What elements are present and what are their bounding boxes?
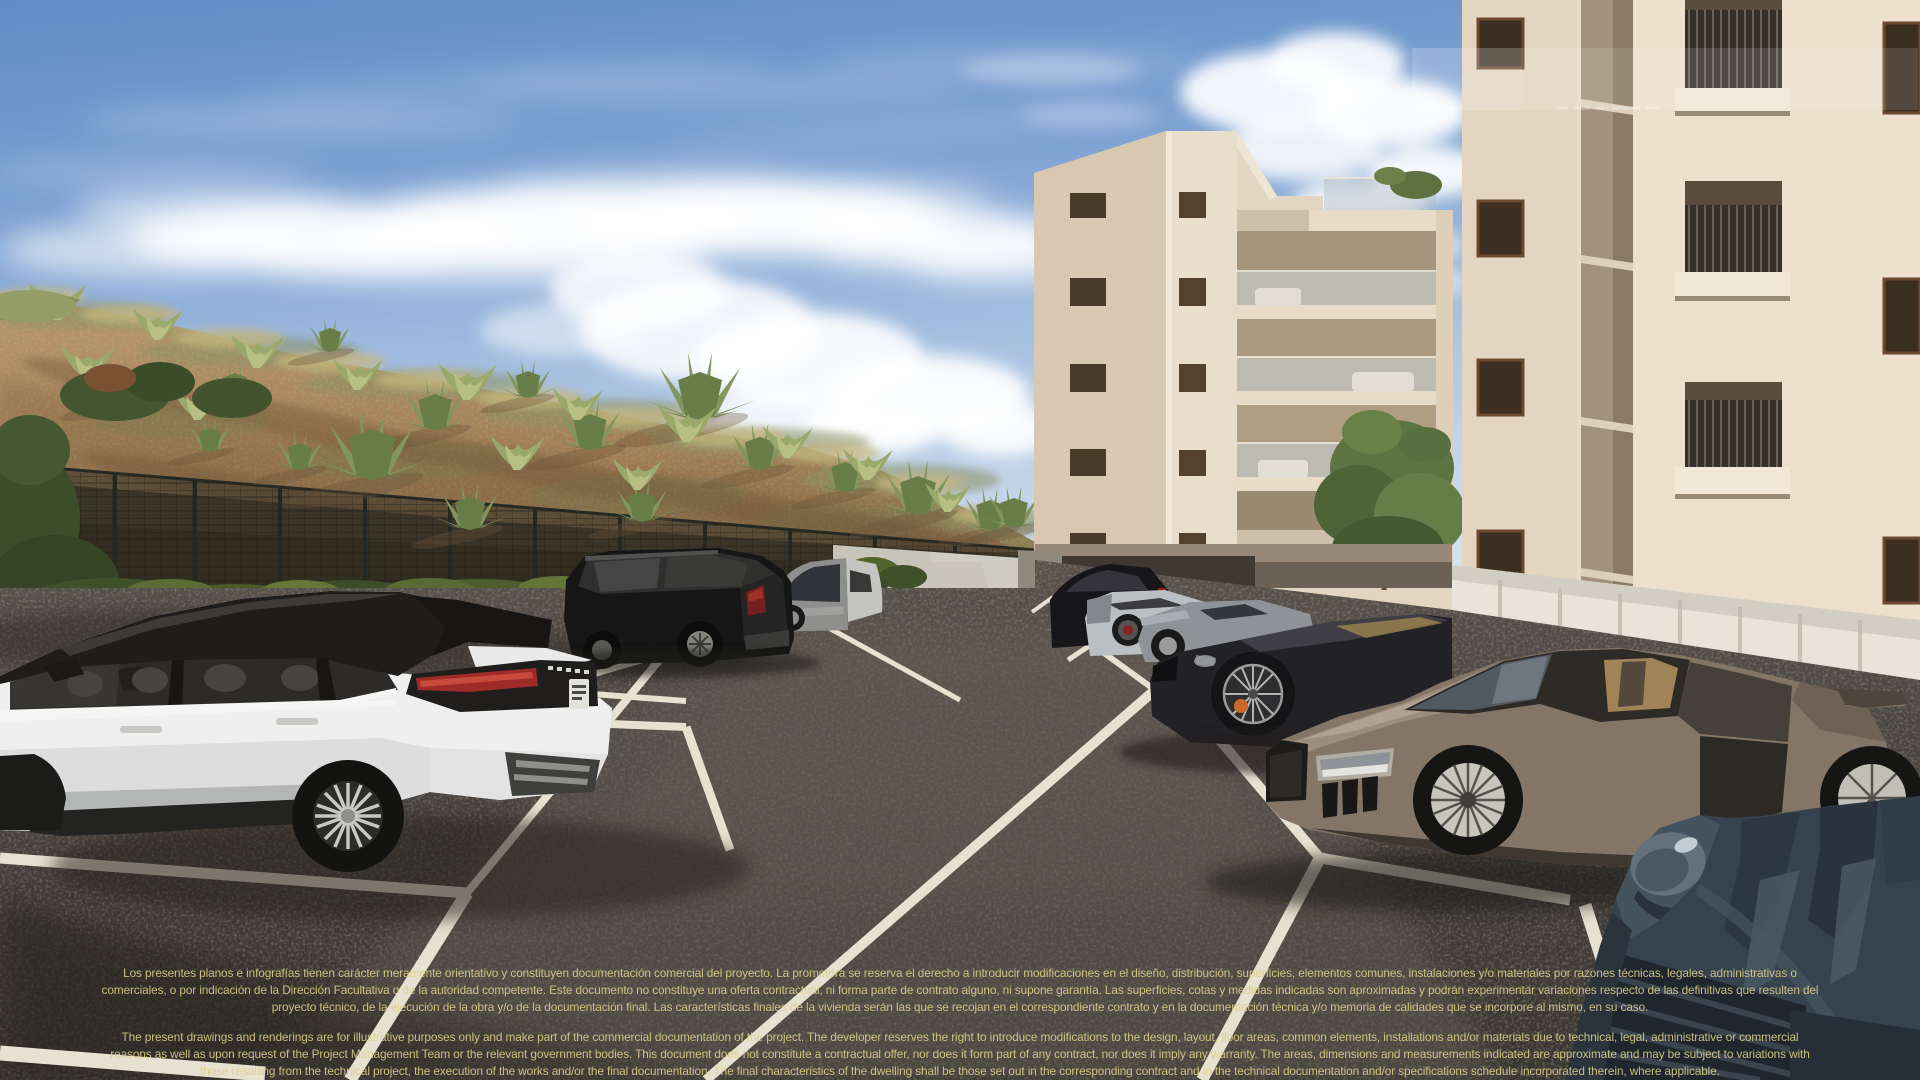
svg-text:those resulting from the techn: those resulting from the technical proje… bbox=[200, 1064, 1720, 1078]
svg-text:proyecto técnico, de la ejecuc: proyecto técnico, de la ejecución de la … bbox=[272, 1000, 1649, 1014]
svg-text:reasons as well as upon reques: reasons as well as upon request of the P… bbox=[110, 1047, 1809, 1061]
svg-text:comerciales, o por indicación: comerciales, o por indicación de la Dire… bbox=[102, 983, 1819, 997]
svg-text:The present drawings and rende: The present drawings and renderings are … bbox=[122, 1030, 1799, 1044]
svg-text:Los presentes planos e infogra: Los presentes planos e infografías tiene… bbox=[123, 966, 1797, 980]
